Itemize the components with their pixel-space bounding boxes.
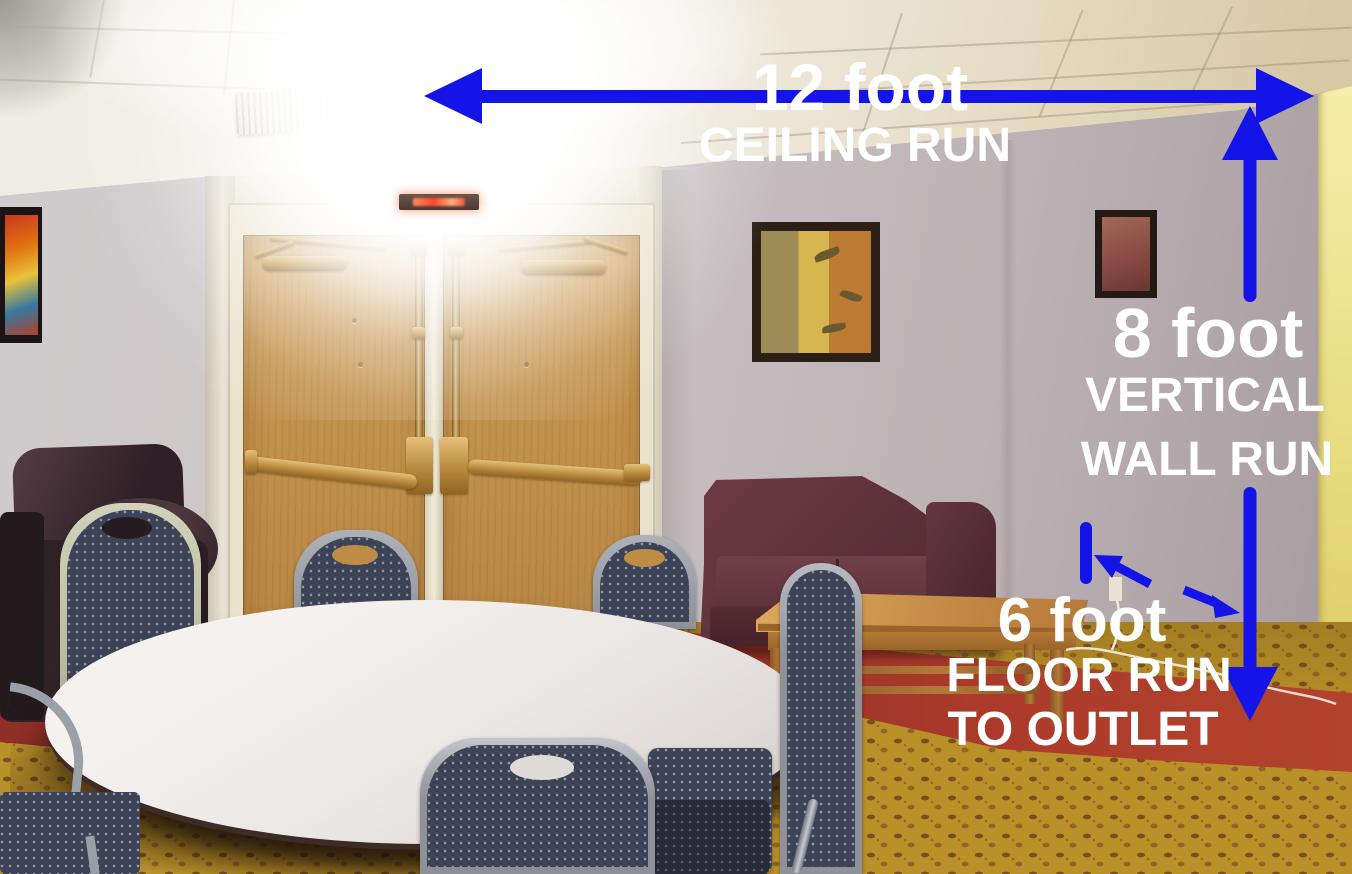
left-door-vertical-rod <box>415 243 423 445</box>
floor-run-label-1: FLOOR RUN <box>946 652 1231 700</box>
door-hole <box>352 318 357 323</box>
small-art-frame-right <box>1095 210 1157 298</box>
wall-run-measurement: 8 foot <box>1113 298 1304 368</box>
banquet-chair-seat-shade <box>650 800 770 874</box>
bamboo-art-canvas <box>761 231 871 353</box>
rod-collar <box>412 327 425 339</box>
wall-run-label-1: VERTICAL <box>1085 372 1325 420</box>
right-door-closer <box>521 260 606 275</box>
abstract-art-canvas <box>5 215 38 335</box>
ceiling-corner-shadow <box>0 0 170 210</box>
right-door-vertical-rod <box>452 243 460 445</box>
rod-collar <box>450 327 463 339</box>
banquet-chair-seat <box>0 792 140 874</box>
wall-corner <box>1000 140 1016 660</box>
banquet-chair <box>780 563 862 874</box>
rod-top-latch <box>448 238 465 256</box>
bamboo-art-frame <box>752 222 880 362</box>
wall-run-label-2: WALL RUN <box>1081 436 1333 484</box>
left-door-closer <box>262 256 347 271</box>
banquet-chair <box>420 738 655 874</box>
annotated-room-photo: 12 foot CEILING RUN 8 foot VERTICAL WALL… <box>0 0 1352 874</box>
panic-bar-end-plate <box>245 450 257 474</box>
floor-run-label-2: TO OUTLET <box>947 706 1218 754</box>
small-art-canvas <box>1102 217 1150 291</box>
panic-bar-center-case <box>440 437 468 494</box>
abstract-art-frame-left <box>0 207 42 343</box>
exit-sign <box>399 194 479 210</box>
ceiling-run-label: CEILING RUN <box>699 122 1011 170</box>
panic-bar-bracket <box>624 464 650 481</box>
door-hole <box>524 362 529 367</box>
floor-run-measurement: 6 foot <box>998 590 1167 652</box>
exit-sign-glow <box>413 198 465 206</box>
ceiling-air-vent <box>235 87 365 136</box>
ceiling-run-measurement: 12 foot <box>752 54 968 120</box>
rod-top-latch <box>410 238 427 256</box>
door-hole <box>358 362 363 367</box>
